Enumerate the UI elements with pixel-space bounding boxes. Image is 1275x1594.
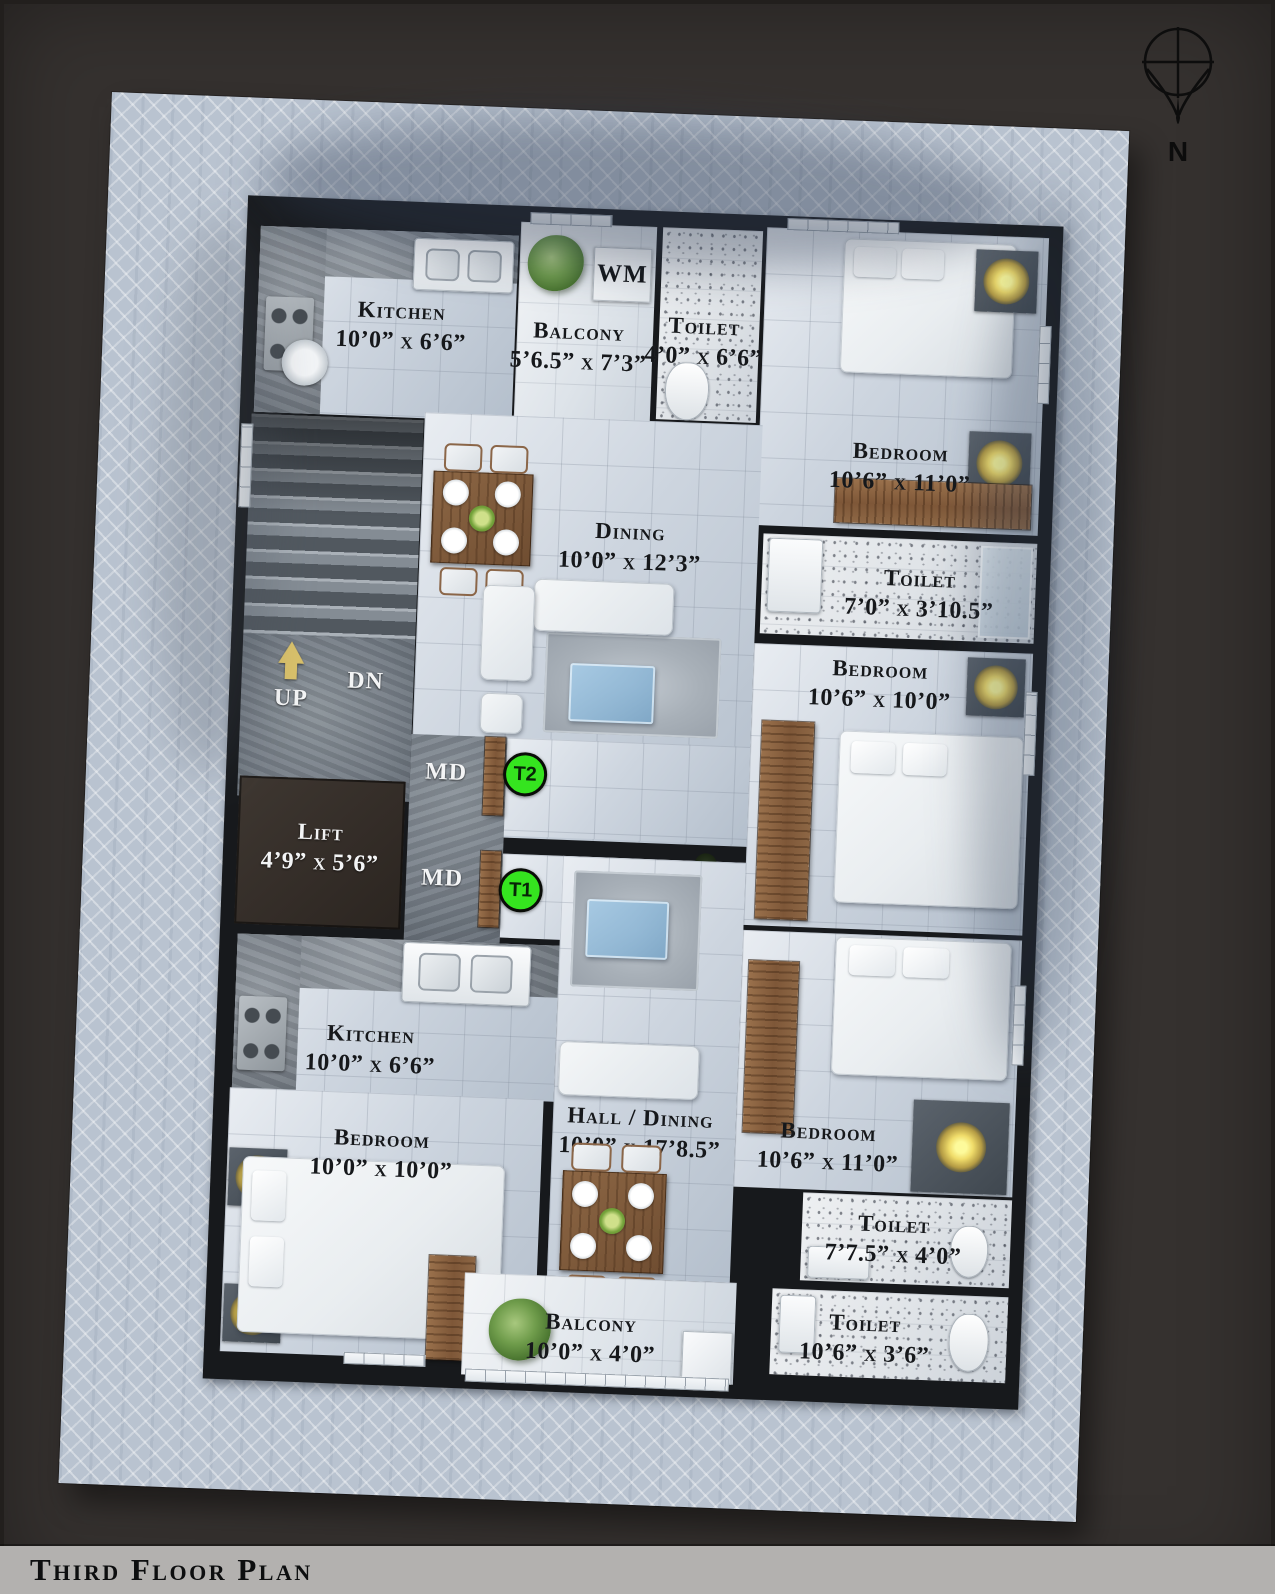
plate bbox=[570, 1232, 597, 1259]
room-label-toilet-mid: Toilet 7’0” x 3’10.5” bbox=[808, 561, 1030, 628]
bedroom-br-bed bbox=[831, 936, 1012, 1081]
dining-chair bbox=[571, 1142, 612, 1172]
plate bbox=[626, 1235, 653, 1262]
coffee-table bbox=[568, 663, 655, 724]
window bbox=[343, 1352, 425, 1367]
ceiling-light bbox=[935, 1121, 987, 1173]
pillow bbox=[853, 247, 896, 279]
up-arrow-icon bbox=[278, 641, 305, 664]
kitchen-top-sink bbox=[413, 238, 515, 294]
washing-machine: WM bbox=[592, 247, 652, 303]
compass-icon bbox=[1126, 18, 1230, 136]
bedroom-mr-bed bbox=[833, 730, 1023, 909]
dn-label: DN bbox=[333, 667, 398, 696]
room-label-balcony-bottom: Balcony 10’0” x 4’0” bbox=[499, 1306, 681, 1372]
sink-bowl bbox=[418, 952, 461, 992]
plate bbox=[493, 529, 520, 556]
ottoman bbox=[480, 693, 524, 735]
window bbox=[1037, 326, 1052, 404]
room-label-toilet-top: Toilet 4’0” x 6’6” bbox=[623, 310, 785, 375]
sink-bowl bbox=[470, 954, 513, 994]
room-dims: 4’9” x 5’6” bbox=[236, 844, 403, 880]
hall-dining-table bbox=[559, 1170, 667, 1274]
plate bbox=[494, 481, 521, 508]
room-label-toilet-bottom-1: Toilet 7’7.5” x 4’0” bbox=[782, 1207, 1004, 1274]
room-label-bedroom-bottom-right: Bedroom 10’6” x 11’0” bbox=[727, 1114, 929, 1180]
md-label-t1: MD bbox=[408, 864, 477, 894]
bedroom-mr-wardrobe bbox=[755, 720, 815, 920]
room-label-bedroom-top-right: Bedroom 10’6” x 11’0” bbox=[781, 434, 1019, 502]
room-label-bedroom-mid-right: Bedroom 10’6” x 10’0” bbox=[774, 652, 986, 719]
tag-text: T1 bbox=[509, 878, 533, 902]
sofa bbox=[480, 585, 536, 682]
compass-n-label: N bbox=[1126, 136, 1230, 168]
plate bbox=[572, 1180, 599, 1207]
room-label-kitchen-bottom: Kitchen 10’0” x 6’6” bbox=[269, 1017, 471, 1083]
ceiling-light bbox=[983, 258, 1031, 306]
staircase bbox=[243, 414, 423, 640]
title-bar: Third Floor Plan bbox=[0, 1546, 1275, 1594]
pillow bbox=[248, 1236, 284, 1287]
pillow bbox=[903, 947, 950, 979]
room-label-toilet-bottom-2: Toilet 10’6” x 3’6” bbox=[754, 1306, 976, 1373]
room-label-kitchen-top: Kitchen 10’0” x 6’6” bbox=[300, 293, 502, 359]
room-label-lift: Lift 4’9” x 5’6” bbox=[236, 815, 404, 880]
salad-bowl bbox=[468, 505, 495, 532]
window bbox=[1022, 692, 1037, 776]
dining-chair bbox=[621, 1144, 662, 1174]
bedroom-br-sideboard bbox=[743, 960, 800, 1134]
plate bbox=[441, 527, 468, 554]
hall-sofa bbox=[558, 1041, 700, 1100]
tag-text: T2 bbox=[513, 762, 537, 786]
dining-chair bbox=[439, 567, 478, 596]
window bbox=[1011, 985, 1026, 1065]
sofa bbox=[533, 579, 675, 636]
floor-plan-sheet: Kitchen 10’0” x 6’6” WM Balcony 5’6.5” x… bbox=[0, 0, 1275, 1594]
room-label-bedroom-bottom-left: Bedroom 10’0” x 10’0” bbox=[260, 1121, 502, 1189]
room-label-dining: Dining 10’0” x 12’3” bbox=[529, 514, 731, 580]
sink-bowl bbox=[425, 248, 460, 281]
kitchen-bottom-sink bbox=[401, 942, 531, 1007]
ceiling-light-pad bbox=[974, 249, 1038, 313]
dining-table bbox=[430, 471, 533, 567]
wm-label: WM bbox=[597, 260, 649, 290]
building-plan: Kitchen 10’0” x 6’6” WM Balcony 5’6.5” x… bbox=[203, 195, 1064, 1409]
salad-bowl bbox=[599, 1208, 626, 1235]
room-dims: 4’0” x 6’6” bbox=[623, 339, 784, 375]
sheet-title: Third Floor Plan bbox=[30, 1552, 313, 1588]
pillow bbox=[901, 248, 944, 280]
dining-chair bbox=[490, 445, 529, 474]
dining-chair bbox=[444, 443, 483, 472]
hall-coffee-table bbox=[585, 899, 669, 960]
pillow bbox=[850, 741, 895, 775]
pillow bbox=[902, 743, 947, 777]
plate bbox=[442, 479, 469, 506]
md-label-t2: MD bbox=[412, 758, 481, 788]
plate bbox=[628, 1183, 655, 1210]
sink-bowl bbox=[467, 250, 502, 283]
up-label: UP bbox=[258, 684, 323, 713]
main-door-t2 bbox=[483, 737, 506, 816]
pillow bbox=[849, 945, 896, 977]
north-compass: N bbox=[1126, 18, 1230, 166]
paved-site: Kitchen 10’0” x 6’6” WM Balcony 5’6.5” x… bbox=[59, 92, 1130, 1522]
